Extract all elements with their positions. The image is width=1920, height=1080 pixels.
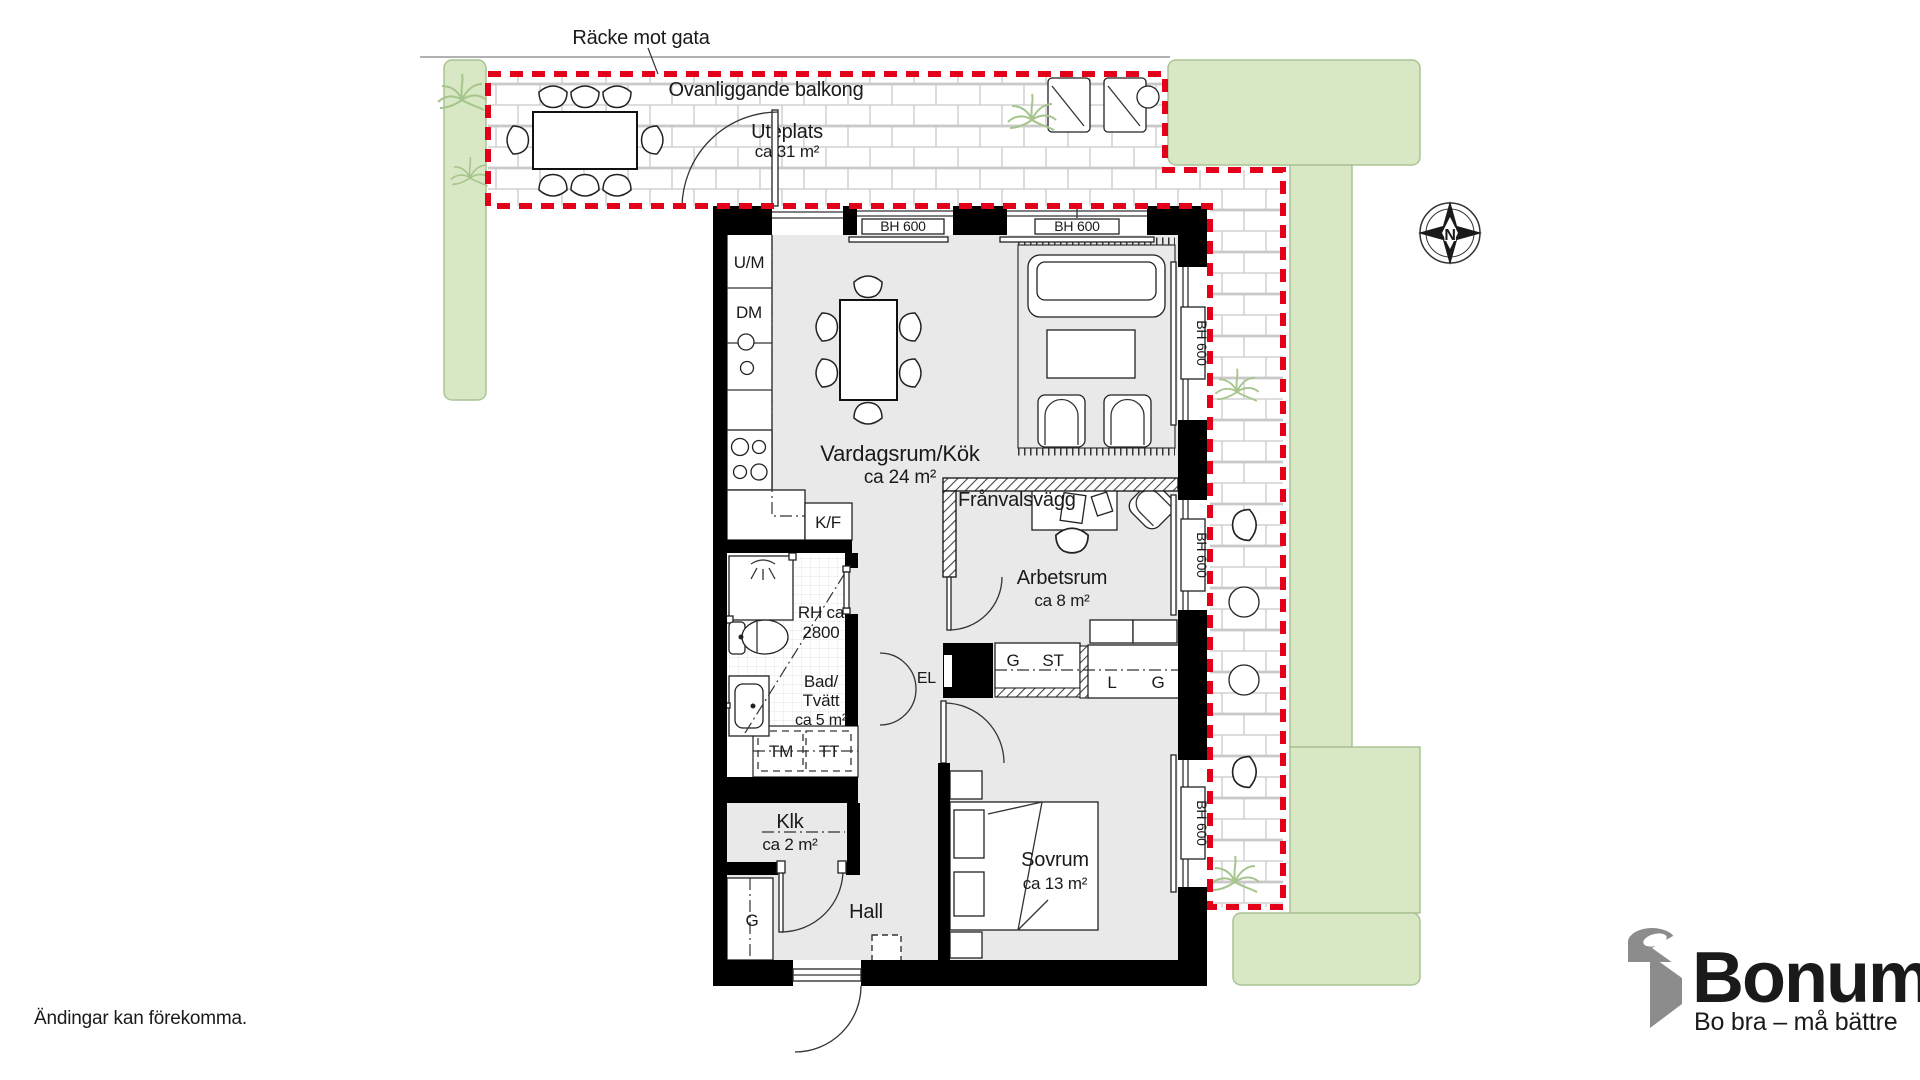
patio-table bbox=[1229, 665, 1259, 695]
room-label-study: Arbetsrum bbox=[1017, 567, 1107, 589]
armchair bbox=[1038, 395, 1085, 447]
room-area-closet: ca 2 m² bbox=[762, 835, 818, 854]
compass-north-label: N bbox=[1444, 227, 1455, 244]
balcony-above-label: Ovanliggande balkong bbox=[668, 79, 863, 101]
room-label-bath-1: Bad/ bbox=[804, 672, 839, 691]
bonum-logo-mark bbox=[1628, 928, 1682, 1028]
floorplan-drawing: Räcke mot gata Ovanliggande balkong Utep… bbox=[0, 0, 1920, 1080]
washer-label: TM bbox=[769, 742, 793, 761]
optional-wall-vertical bbox=[943, 491, 956, 577]
room-label-livingroom: Vardagsrum/Kök bbox=[820, 441, 981, 466]
fridge-label: K/F bbox=[815, 513, 841, 532]
lawn-top-right bbox=[1168, 60, 1420, 165]
wardrobe-label-g: G bbox=[1151, 673, 1164, 692]
room-area-bedroom: ca 13 m² bbox=[1023, 874, 1088, 893]
lawn-right-lower bbox=[1290, 747, 1420, 913]
railing-leader-line bbox=[648, 48, 658, 74]
bonum-wordmark: Bonum bbox=[1692, 938, 1920, 1018]
terrace-door-leaf bbox=[772, 110, 778, 206]
desk-chair bbox=[1056, 528, 1088, 553]
micro-oven-label: U/M bbox=[734, 253, 765, 272]
stove bbox=[727, 430, 772, 490]
dryer-label: TT bbox=[819, 742, 839, 761]
armchair bbox=[1104, 395, 1151, 447]
linen-closet-label: L bbox=[1107, 673, 1116, 692]
pillow bbox=[954, 872, 984, 916]
ceiling-height-label-2: 2800 bbox=[802, 623, 839, 642]
toilet bbox=[729, 620, 788, 654]
bonum-tagline: Bo bra – må bättre bbox=[1694, 1008, 1897, 1036]
pillow bbox=[954, 810, 984, 858]
sink-icon bbox=[741, 362, 754, 375]
terrace-label: Uteplats bbox=[751, 121, 823, 143]
patio-table bbox=[1229, 587, 1259, 617]
room-label-bath-2: Tvätt bbox=[803, 691, 840, 710]
railing-label: Räcke mot gata bbox=[572, 27, 710, 49]
nightstand bbox=[950, 932, 982, 958]
coffee-table bbox=[1047, 330, 1135, 378]
bonum-logo: Bonum Bo bra – må bättre bbox=[1628, 928, 1920, 1036]
nightstand bbox=[950, 771, 982, 799]
shower bbox=[729, 556, 793, 620]
outdoor-dining-table bbox=[533, 112, 637, 169]
entrance-door-swing bbox=[795, 986, 861, 1052]
shaft bbox=[872, 935, 901, 964]
ceiling-height-label-1: RH ca bbox=[798, 603, 845, 622]
electrical-label: EL bbox=[917, 670, 936, 687]
wardrobe-label-g: G bbox=[745, 911, 758, 930]
room-label-hall: Hall bbox=[849, 901, 883, 923]
room-label-bedroom: Sovrum bbox=[1021, 849, 1089, 871]
wardrobe-label-g: G bbox=[1006, 651, 1019, 670]
disclaimer-text: Ändingar kan förekomma. bbox=[34, 1008, 247, 1029]
wardrobe-l-g bbox=[1088, 645, 1180, 698]
dining-table bbox=[840, 300, 897, 400]
room-area-study: ca 8 m² bbox=[1034, 591, 1090, 610]
lounge-chair bbox=[1048, 78, 1090, 132]
room-area-livingroom: ca 24 m² bbox=[864, 467, 936, 488]
lawn-left-strip bbox=[444, 60, 486, 400]
room-area-bath: ca 5 m² bbox=[795, 712, 848, 729]
side-table bbox=[1137, 86, 1159, 108]
lawn-bottom bbox=[1233, 913, 1420, 985]
sink-icon bbox=[738, 334, 754, 350]
window-height-label: BH 600 bbox=[880, 218, 926, 234]
compass-rose: N bbox=[1418, 201, 1482, 265]
terrace-area: ca 31 m² bbox=[755, 142, 820, 161]
optional-wall-label: Frånvalsvägg bbox=[958, 489, 1076, 511]
room-label-closet: Klk bbox=[776, 811, 804, 833]
dishwasher-label: DM bbox=[736, 303, 762, 322]
floorplan-page: Räcke mot gata Ovanliggande balkong Utep… bbox=[0, 0, 1920, 1080]
sliding-door bbox=[844, 572, 849, 608]
window-height-label: BH 600 bbox=[1054, 218, 1100, 234]
cleaning-closet-label: ST bbox=[1042, 651, 1063, 670]
lawn-right-column bbox=[1290, 165, 1352, 747]
